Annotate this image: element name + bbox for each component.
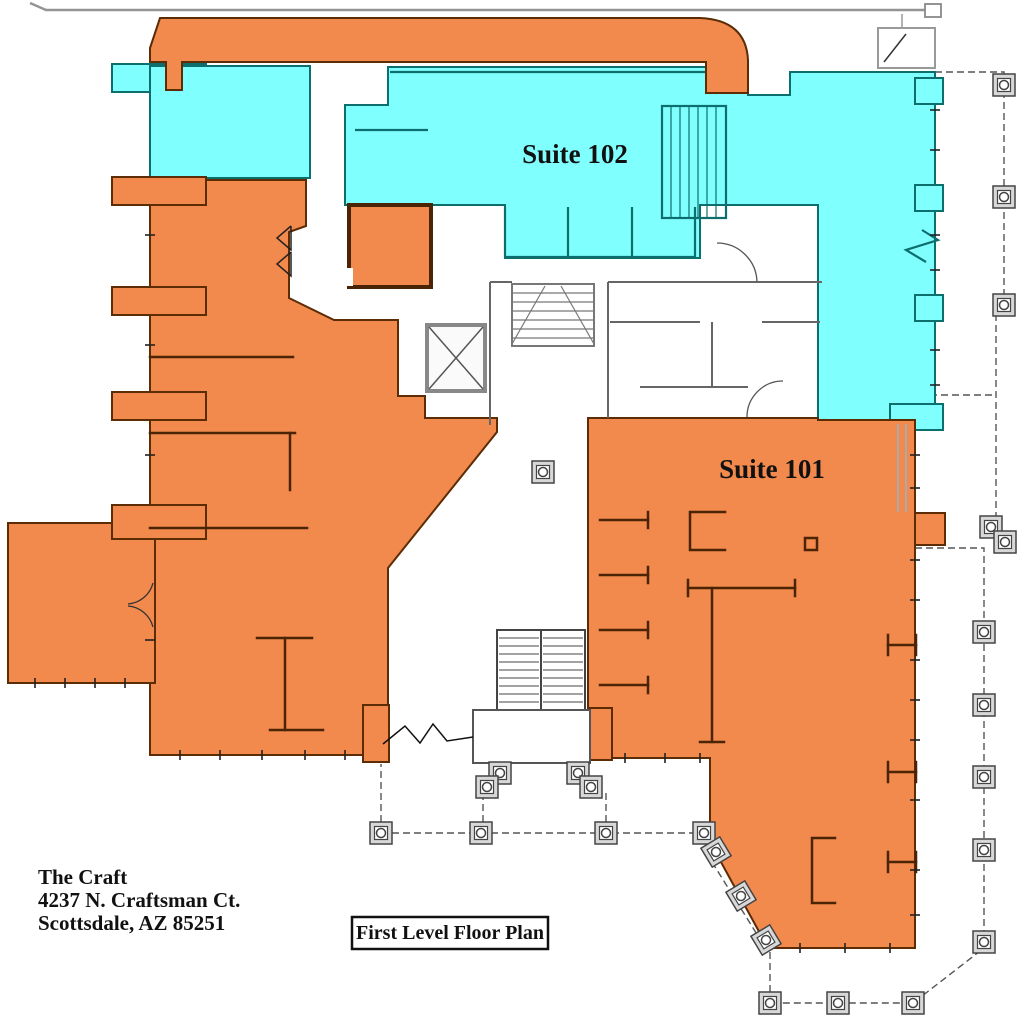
column-marker [993, 294, 1015, 316]
building-address-line2: Scottsdale, AZ 85251 [38, 911, 225, 935]
column-marker [973, 766, 995, 788]
column-marker [973, 931, 995, 953]
balcony-stair-box [878, 28, 935, 68]
building-name: The Craft [38, 865, 127, 889]
pilaster [915, 78, 943, 104]
column-marker [973, 621, 995, 643]
column-marker [994, 531, 1016, 553]
pilaster [915, 513, 945, 545]
pier [363, 705, 389, 762]
entry-break-symbol [383, 724, 473, 744]
column-marker [693, 822, 715, 844]
column-marker [973, 839, 995, 861]
column-marker [902, 992, 924, 1014]
suite-101-main [588, 418, 915, 948]
column-marker [580, 776, 602, 798]
pilaster [112, 392, 206, 420]
pilaster [915, 185, 943, 211]
column-marker [532, 461, 554, 483]
column-marker [759, 992, 781, 1014]
middle-room [349, 205, 431, 287]
column-marker [973, 694, 995, 716]
pilaster [112, 505, 206, 539]
column-marker [827, 992, 849, 1014]
floor-plan-drawing: Suite 102 Suite 101 The Craft 4237 N. Cr… [0, 0, 1023, 1017]
column-marker [370, 822, 392, 844]
pier [588, 708, 612, 760]
entry-vestibule [473, 710, 590, 763]
suite-101-label: Suite 101 [719, 454, 825, 484]
stair-lower [497, 630, 585, 712]
pilaster [915, 295, 943, 321]
door-arc [717, 243, 757, 282]
building-address-line1: 4237 N. Craftsman Ct. [38, 888, 240, 912]
floor-plan-page: Suite 102 Suite 101 The Craft 4237 N. Cr… [0, 0, 1023, 1017]
stair-upper [512, 284, 594, 346]
column-marker [470, 822, 492, 844]
elevator [427, 325, 485, 391]
column-marker [993, 74, 1015, 96]
door-arc [747, 381, 783, 417]
column-marker [595, 822, 617, 844]
canopy-end-cap [925, 4, 941, 17]
suite-102-label: Suite 102 [522, 139, 628, 169]
pilaster [112, 287, 206, 315]
column-marker [476, 776, 498, 798]
left-block [150, 180, 497, 755]
pilaster [112, 177, 206, 205]
plan-title: First Level Floor Plan [356, 922, 544, 944]
column-marker [993, 186, 1015, 208]
